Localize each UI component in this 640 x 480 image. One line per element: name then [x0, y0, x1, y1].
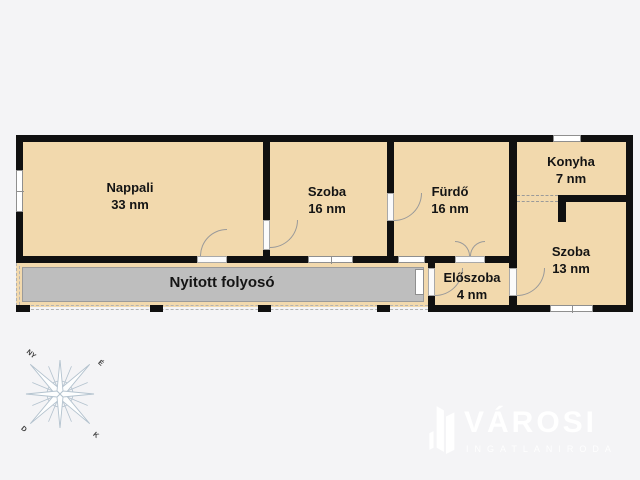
agency-logo: VÁROSI INGATLANIRODA — [412, 400, 634, 462]
pillar — [377, 305, 390, 312]
corridor-open-edge-bottom-inner — [16, 309, 428, 310]
wall-corridor-4 — [425, 256, 455, 263]
pillar — [258, 305, 271, 312]
door-opening-nappali-corridor — [197, 256, 227, 263]
window-symbol-konyha-top — [553, 135, 581, 142]
room-area: 33 nm — [55, 196, 205, 213]
window-symbol-left — [16, 170, 23, 212]
pillar — [16, 305, 30, 312]
room-area: 7 nm — [496, 170, 640, 187]
corridor-open-edge-bottom — [16, 305, 428, 306]
corridor-label-text: Nyitott folyosó — [22, 274, 422, 292]
wall-top — [16, 135, 633, 142]
wall-szoba-furdo-lower — [387, 221, 394, 263]
corridor-label: Nyitott folyosó — [22, 274, 422, 292]
window-symbol-szoba16-bottom — [308, 256, 353, 263]
room-area: 16 nm — [375, 200, 525, 217]
floorplan: Nappali 33 nm Szoba 16 nm Fürdő 16 nm Ko… — [16, 135, 633, 313]
room-label-furdo: Fürdő 16 nm — [375, 183, 525, 217]
wall-left-upper — [16, 135, 23, 170]
room-name: Konyha — [496, 153, 640, 170]
corridor-open-edge-left-inner — [19, 266, 20, 310]
building-icon — [426, 402, 466, 454]
wall-nappali-szoba-lower — [263, 250, 270, 263]
door-opening-furdo-eloszoba — [455, 256, 485, 263]
corridor-open-edge-left — [16, 263, 17, 311]
door-opening-nappali-szoba — [263, 220, 270, 250]
compass-rose: NY É D K — [12, 346, 108, 442]
wall-corridor-1 — [16, 256, 197, 263]
room-name: Nappali — [55, 179, 205, 196]
window-symbol-furdo-bottom — [398, 256, 425, 263]
room-name: Szoba — [496, 243, 640, 260]
room-label-konyha: Konyha 7 nm — [496, 153, 640, 187]
logo-subtitle: INGATLANIRODA — [466, 444, 617, 454]
wall-bottom-right-1 — [428, 305, 550, 312]
room-label-nappali: Nappali 33 nm — [55, 179, 205, 213]
wall-konyha-stub — [558, 195, 566, 222]
wall-konyha-szoba — [558, 195, 633, 202]
wall-bottom-right-2 — [593, 305, 633, 312]
window-symbol-szoba13-bottom — [550, 305, 593, 312]
pillar — [150, 305, 163, 312]
logo-title: VÁROSI — [464, 406, 597, 440]
floorplan-page: Nappali 33 nm Szoba 16 nm Fürdő 16 nm Ko… — [0, 0, 640, 480]
